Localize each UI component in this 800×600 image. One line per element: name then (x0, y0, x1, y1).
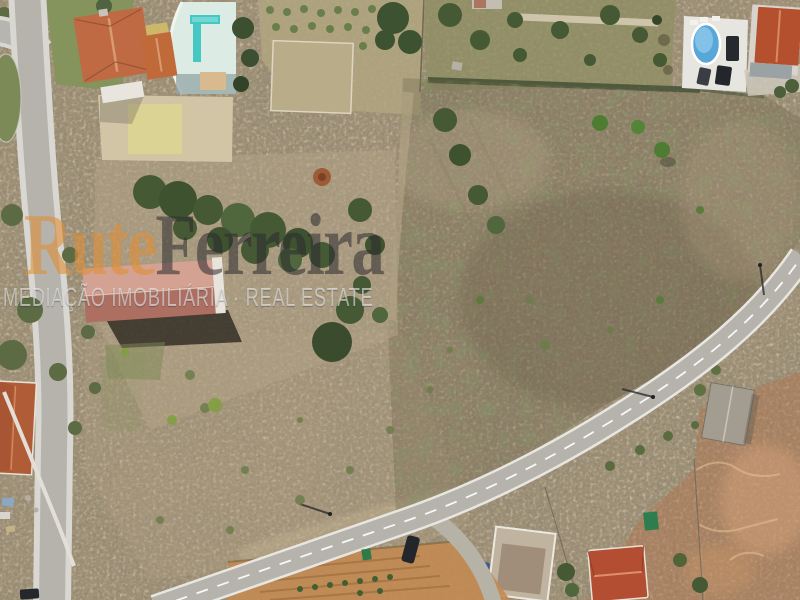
parked-car (20, 588, 40, 599)
parked-car (715, 65, 732, 86)
shrub (663, 65, 673, 75)
rubble (34, 508, 39, 513)
shrub (658, 34, 670, 46)
terrace (749, 62, 792, 79)
pool-water-highlight (695, 27, 713, 53)
corner-house (747, 4, 800, 79)
neighbour-roof-tiles (474, 0, 486, 8)
rubble (25, 495, 31, 501)
aerial-photo-stage: RuteFerreira MEDIAÇÃO IMOBILIÁRIA · REAL… (0, 0, 800, 600)
red-roof-house (588, 546, 648, 600)
utility-box (361, 548, 371, 560)
pool-highlight (192, 17, 218, 22)
fenced-dirt-square (271, 41, 353, 114)
parked-car-dark (726, 36, 739, 61)
parcel-light-patch-2 (680, 120, 800, 280)
lap-pool-arm (193, 22, 201, 62)
lawn-patch (105, 342, 165, 380)
yard-object-blue (2, 497, 15, 506)
chimney (98, 8, 108, 16)
patio-pad (200, 72, 226, 90)
orchard-plot (258, 0, 425, 115)
gray-shed (701, 383, 760, 447)
tree (785, 79, 799, 93)
yard-object-white (0, 512, 10, 519)
yard-object (6, 525, 16, 532)
house-roof (497, 543, 546, 594)
tree (774, 86, 786, 98)
dead-bush-center (318, 173, 326, 181)
garden-shed (451, 61, 462, 71)
aerial-photo (0, 0, 800, 600)
green-shed (643, 511, 659, 530)
